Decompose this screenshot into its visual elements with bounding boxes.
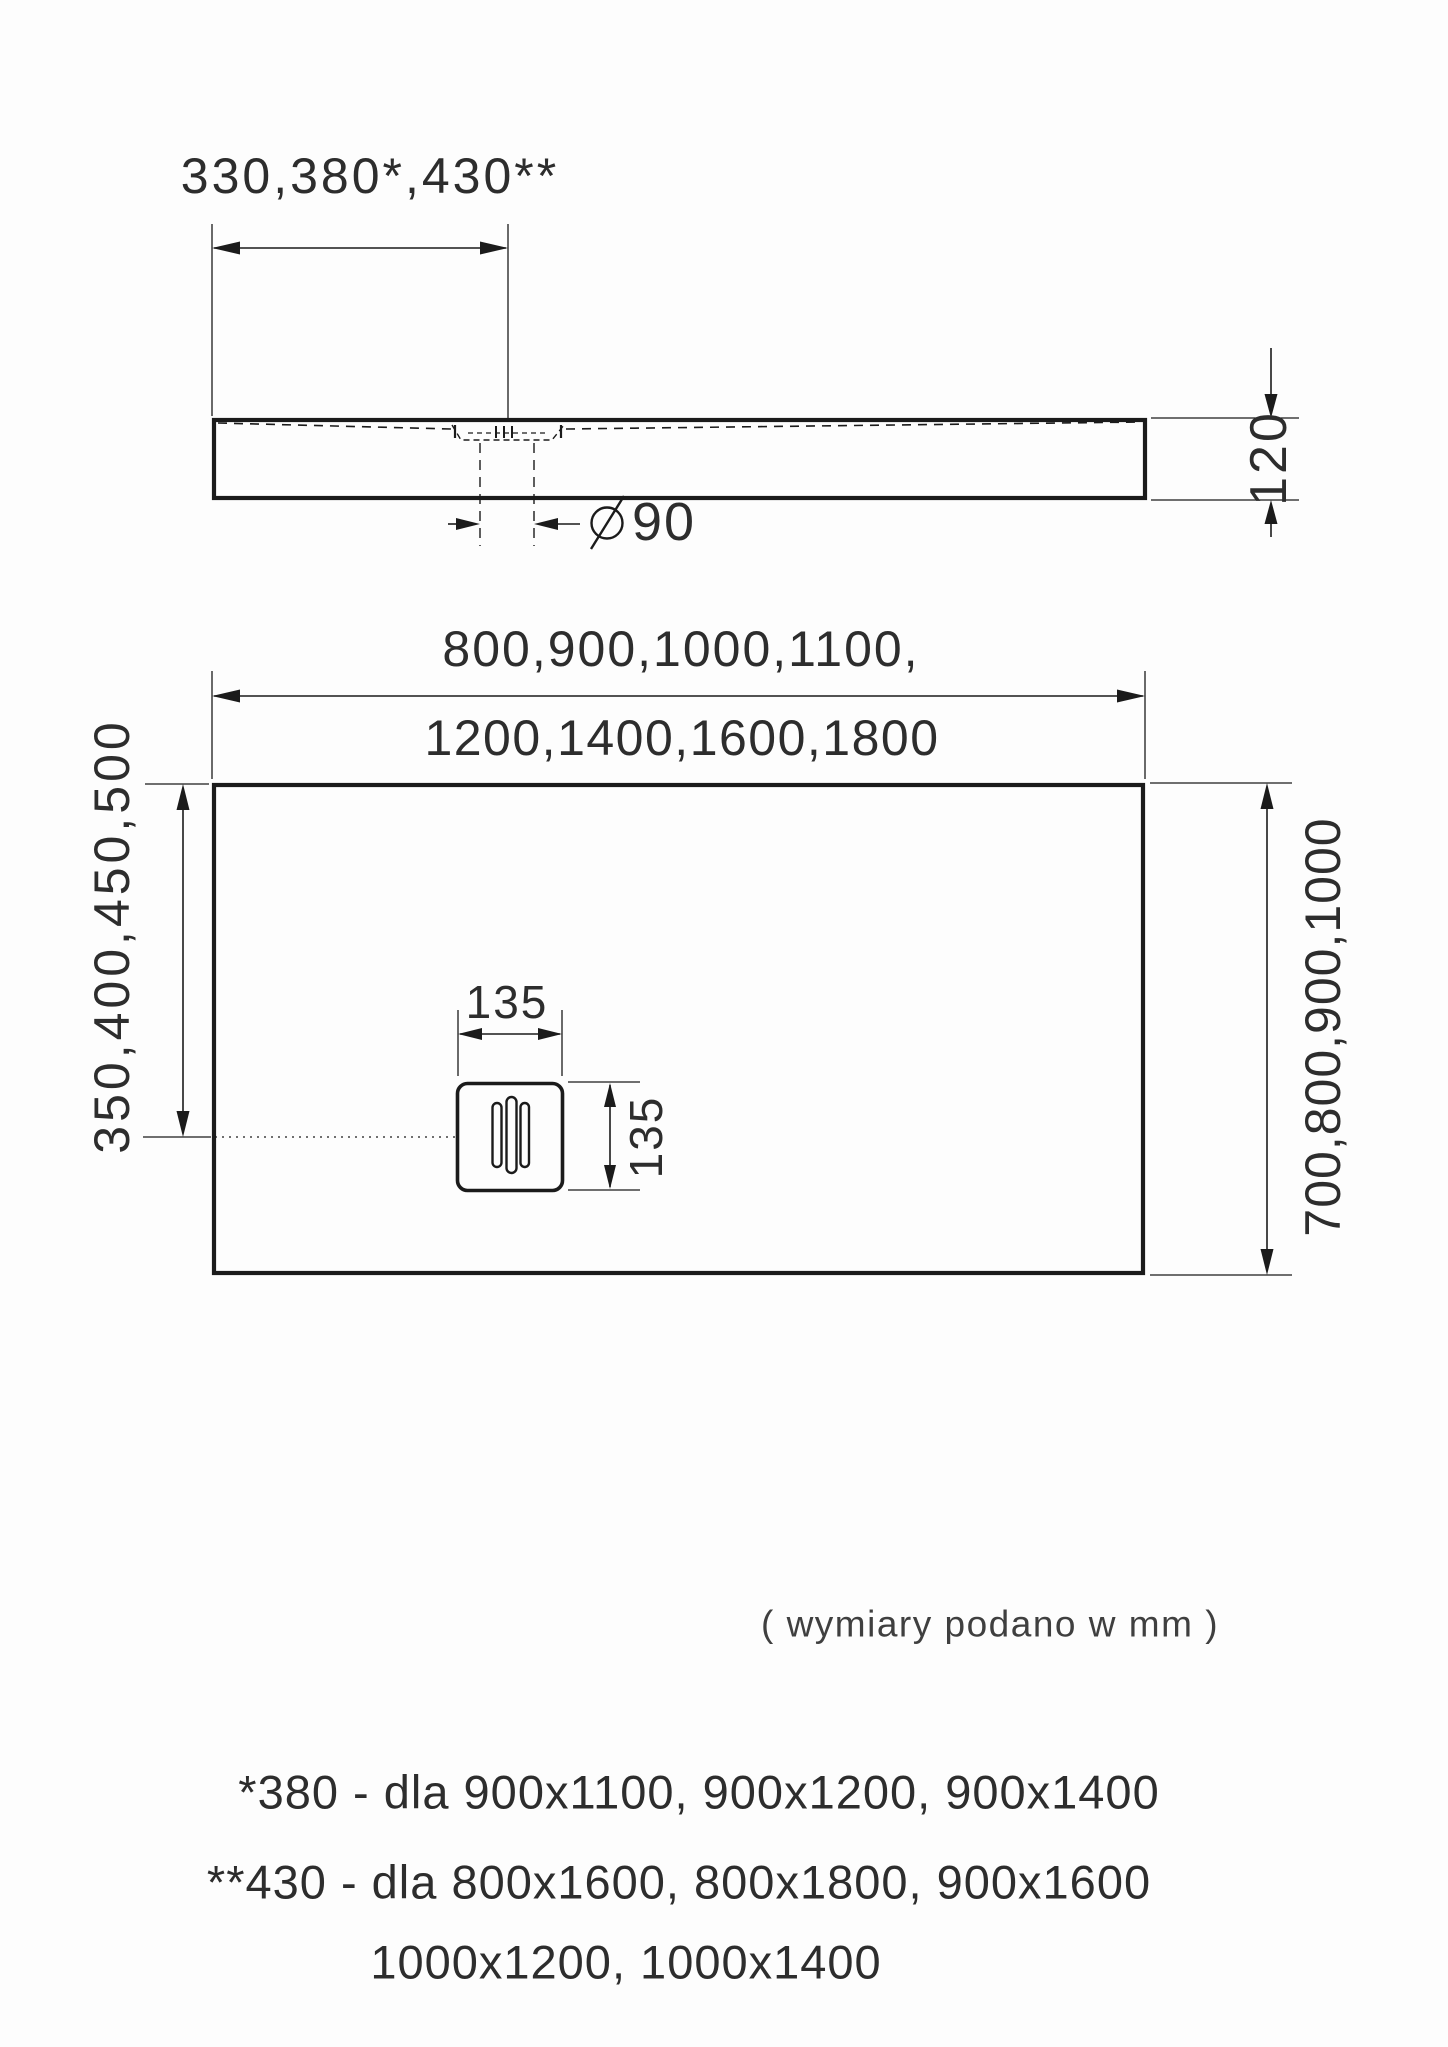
tray-depth-dimension xyxy=(1150,783,1292,1275)
drain-diameter-dimension xyxy=(448,496,624,549)
diameter-icon xyxy=(591,496,624,549)
footnote-430: **430 - dla 800x1600, 800x1800, 900x1600 xyxy=(207,1859,1151,1906)
tray-width-dimension xyxy=(212,690,1145,703)
drain-offset-vertical-label: 350,400,450,500 xyxy=(87,718,137,1153)
drain-offset-dimension xyxy=(212,242,508,255)
technical-drawing-canvas xyxy=(0,0,1448,2047)
arrowhead-down-icon xyxy=(177,1111,190,1137)
tray-depth-label: 700,800,900,1000 xyxy=(1298,817,1348,1236)
side-drain-offset-label: 330,380*,430** xyxy=(181,151,559,201)
tray-width-label-line1: 800,900,1000,1100, xyxy=(442,624,919,674)
drain-diameter-value-label: 90 xyxy=(632,495,696,549)
drain-offset-vertical-dimension xyxy=(143,784,211,1137)
arrowhead-left-icon xyxy=(212,690,240,703)
arrowhead-up-icon xyxy=(177,784,190,810)
arrowhead-left-icon xyxy=(534,518,558,530)
units-note: ( wymiary podano w mm ) xyxy=(761,1606,1219,1643)
technical-drawing-page: 330,380*,430** 90 120 800,900,1000,1100,… xyxy=(0,0,1448,2047)
arrowhead-right-icon xyxy=(480,242,508,255)
tray-plan-outline xyxy=(214,785,1143,1273)
drain-width-label: 135 xyxy=(466,979,549,1025)
tray-width-label-line2: 1200,1400,1600,1800 xyxy=(424,713,939,763)
footnote-430-continued: 1000x1200, 1000x1400 xyxy=(370,1939,881,1986)
arrowhead-down-icon xyxy=(1261,1249,1274,1275)
side-view xyxy=(212,224,1299,549)
arrowhead-up-icon xyxy=(1261,783,1274,809)
drain-square xyxy=(458,1084,563,1191)
tray-height-label: 120 xyxy=(1243,410,1295,506)
arrowhead-right-icon xyxy=(456,518,480,530)
footnote-380: *380 - dla 900x1100, 900x1200, 900x1400 xyxy=(238,1769,1159,1816)
drain-depth-label: 135 xyxy=(623,1096,669,1179)
arrowhead-left-icon xyxy=(212,242,240,255)
tray-side-outline xyxy=(214,420,1145,498)
arrowhead-right-icon xyxy=(1117,690,1145,703)
